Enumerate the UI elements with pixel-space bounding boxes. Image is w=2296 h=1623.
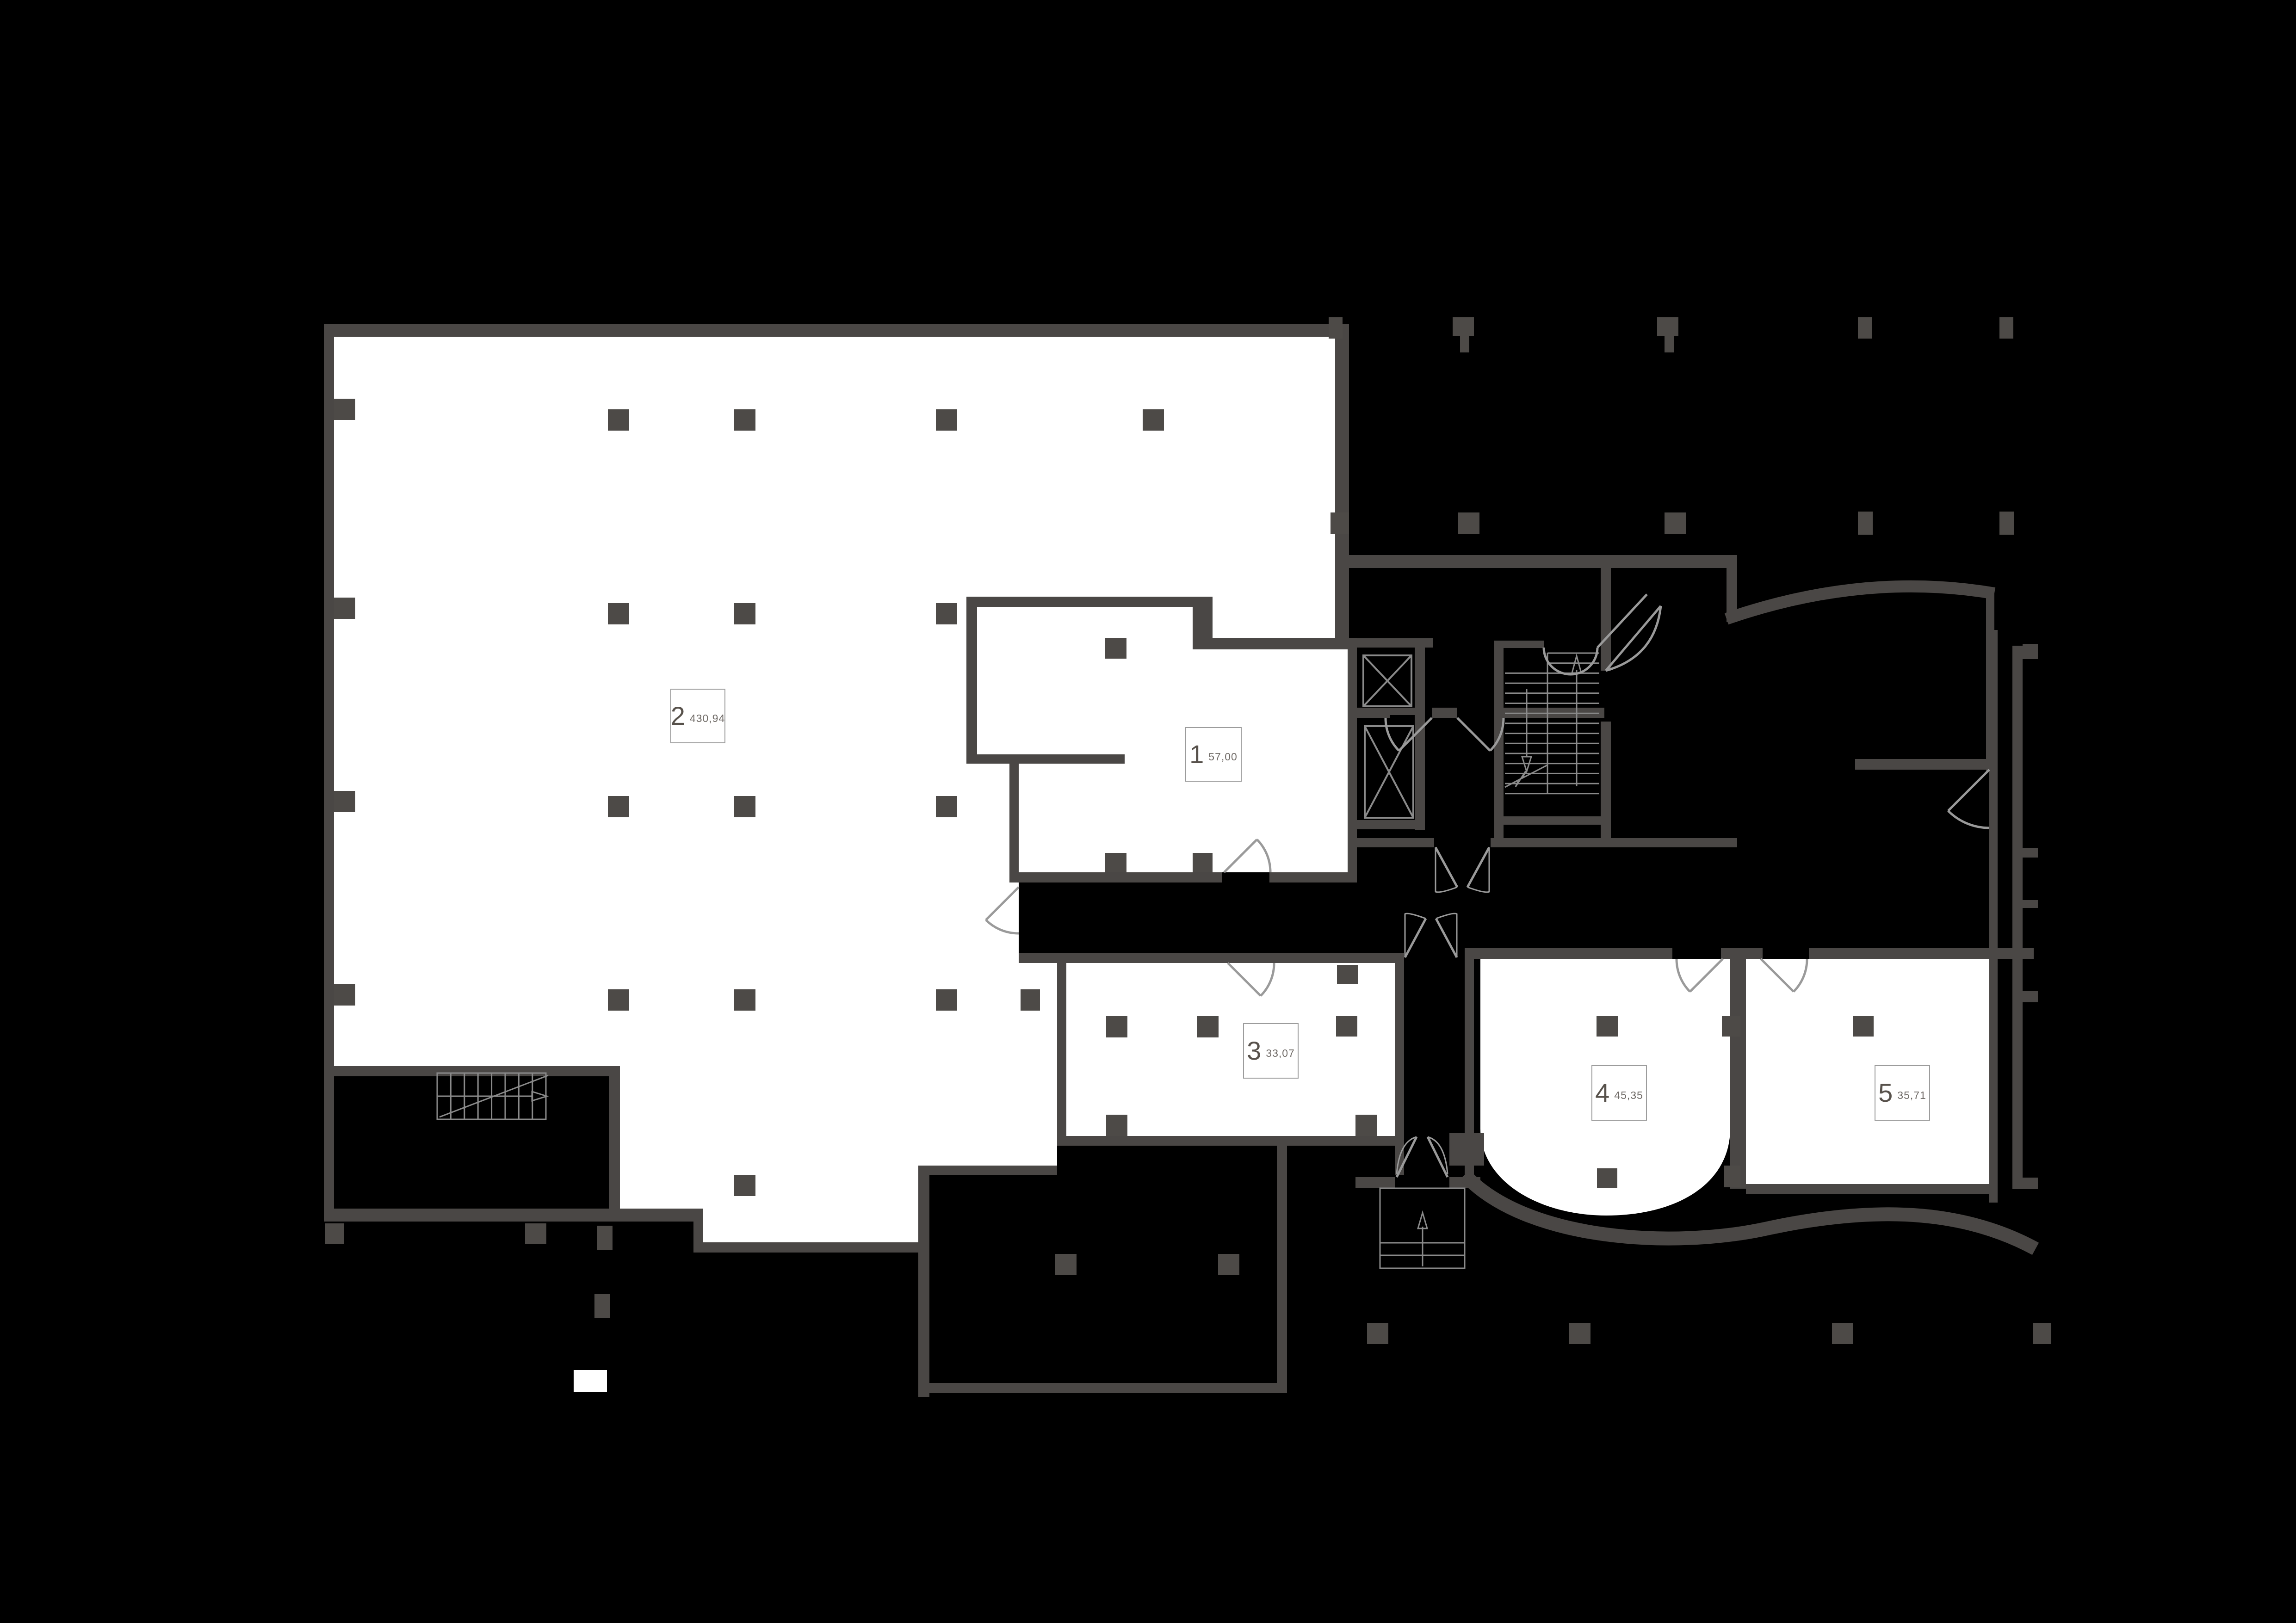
column [1657,317,1678,336]
wall [1019,953,1404,963]
column [1336,1016,1357,1037]
unit-2-label[interactable]: 2 430,94 [670,689,725,743]
wall [918,1383,1287,1393]
column [1106,1016,1127,1037]
wall [609,1066,620,1222]
column [1453,317,1474,336]
column [2033,1323,2051,1344]
unit-3-area: 33,07 [1266,1043,1295,1059]
wall [1355,708,1415,715]
wall [1494,816,1601,825]
column [334,399,355,420]
unit-3-number: 3 [1247,1038,1261,1064]
wall [1009,872,1222,882]
column [936,603,957,624]
column [597,1226,613,1250]
column [334,791,355,812]
column [1569,1323,1590,1344]
wall [1277,1146,1287,1393]
column [936,409,957,431]
wall [324,1209,703,1222]
wall [1395,963,1404,1175]
wall [966,754,1125,764]
unit-1-area: 57,00 [1208,747,1238,762]
unit-3-label[interactable]: 3 33,07 [1243,1023,1299,1079]
wall [1491,838,1737,847]
wall [2023,644,2038,659]
column [1597,1016,1618,1037]
wall [1809,948,2034,959]
column [1355,1115,1377,1136]
unit-5-room[interactable] [1746,959,1989,1184]
wall [1193,638,1357,649]
column [594,1294,610,1318]
wall [324,324,1349,337]
wall [1855,759,1993,770]
column [1665,512,1686,534]
unit-4-number: 4 [1595,1080,1609,1106]
column [608,989,629,1011]
column [734,989,755,1011]
wall [2023,1178,2038,1189]
wall [929,1166,1057,1175]
column [734,1175,755,1196]
column [1597,1168,1617,1188]
column [334,598,355,619]
wall [918,1166,929,1397]
wall [1355,1177,1395,1188]
column [1999,512,2014,535]
column [1853,1016,1874,1037]
wall [1449,1133,1484,1166]
column [1367,1323,1388,1344]
column [936,796,957,817]
wall [1355,638,1433,648]
unit-2-number: 2 [671,703,685,729]
wall [1335,324,1349,649]
column [1197,1016,1219,1037]
wall [2012,646,2023,1189]
unit-5-label[interactable]: 5 35,71 [1875,1065,1930,1121]
column [1460,336,1469,352]
unit-3-room[interactable] [1066,963,1395,1136]
wall [693,1242,929,1253]
wall [1009,764,1019,882]
floor-plan-drawing [0,0,2296,1623]
wall [1349,838,1434,847]
column [1724,1166,1740,1187]
wall [1343,555,1737,568]
column [525,1223,546,1244]
column [734,796,755,817]
wall [966,597,1213,607]
column [1458,512,1479,534]
unit-4-label[interactable]: 4 45,35 [1591,1065,1647,1121]
wall [330,1066,620,1076]
column [734,603,755,624]
wall [966,597,977,764]
column [1106,1115,1127,1136]
wall [1494,641,1544,648]
wall [1465,948,1672,959]
wall [1432,708,1457,718]
wall [1057,963,1066,1146]
wall [1746,1184,1989,1194]
column [1193,853,1213,872]
column [1055,1254,1077,1275]
column [1331,512,1349,534]
column [1218,1254,1239,1275]
column [334,984,355,1006]
wall [1415,648,1425,830]
wall [1355,820,1425,829]
wall [2023,848,2038,858]
column [1337,965,1358,984]
wall [1730,948,1746,1189]
column [1858,317,1872,339]
wall [324,324,334,1222]
unit-4-area: 45,35 [1614,1086,1643,1101]
wall [2023,900,2038,908]
column [608,409,629,431]
unit-5-number: 5 [1878,1080,1893,1106]
column [1105,853,1126,872]
wall [1601,555,1611,671]
wall [1601,722,1611,845]
wall [1269,872,1357,882]
unit-2-area: 430,94 [690,709,725,724]
column [1329,317,1343,339]
unit-5-area: 35,71 [1897,1086,1926,1101]
unit-1-label[interactable]: 1 57,00 [1185,727,1242,782]
column [734,409,755,431]
floor-plan-page: { "plan": { "type": "commercial-floor-pl… [0,0,2296,1623]
column [936,989,957,1011]
column [1021,989,1040,1011]
column [608,796,629,817]
unit-1-number: 1 [1189,741,1204,767]
wall [1989,630,1998,1203]
column [1722,1016,1740,1037]
column [1665,336,1674,352]
column [1832,1323,1853,1344]
column [325,1223,344,1244]
exterior-stoop [574,1370,607,1392]
column [1999,317,2013,339]
column [1858,512,1873,535]
wall [1057,1136,1404,1146]
wall [2023,991,2038,1002]
column [1105,638,1126,659]
column [608,603,629,624]
column [1143,409,1164,431]
